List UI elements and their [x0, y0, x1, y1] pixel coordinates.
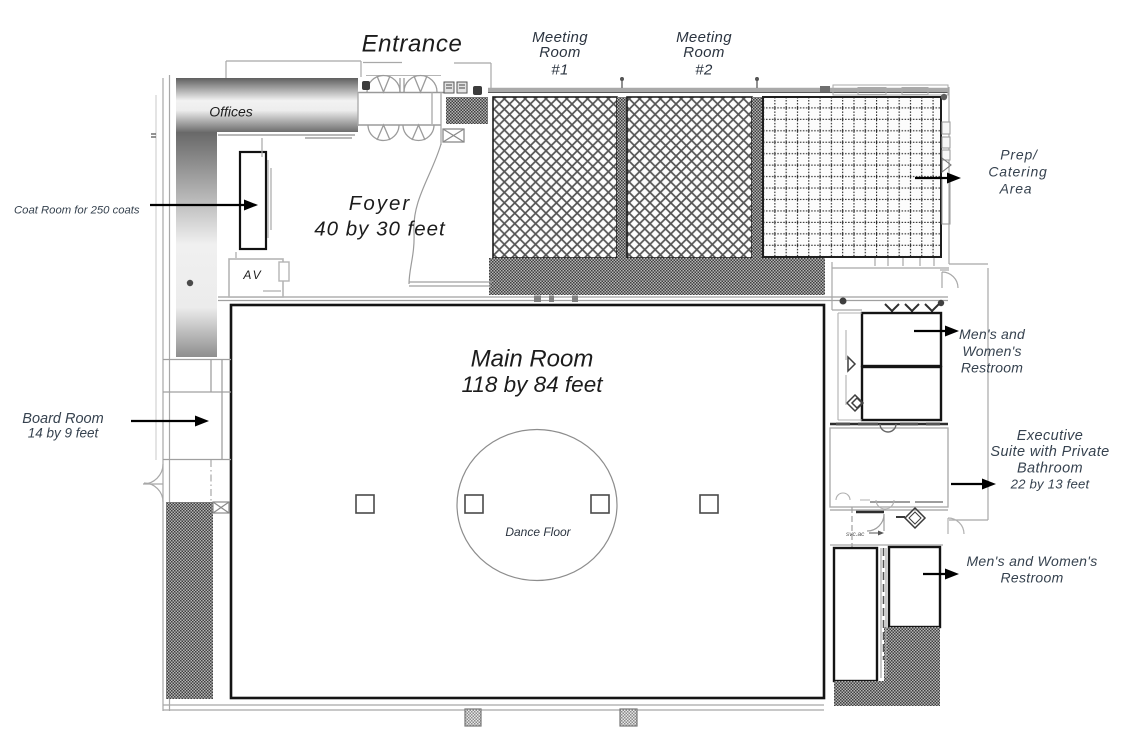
svg-text:Room: Room	[683, 44, 724, 61]
svg-text:Suite with Private: Suite with Private	[990, 444, 1109, 460]
svg-text:Area: Area	[999, 181, 1033, 197]
svg-text:Main Room: Main Room	[471, 346, 594, 373]
svg-text:Men's and: Men's and	[959, 326, 1026, 342]
svg-text:Catering: Catering	[988, 164, 1047, 180]
svg-text:svc.ac: svc.ac	[846, 531, 865, 538]
svg-text:Men's and Women's: Men's and Women's	[966, 553, 1097, 569]
svg-text:Bathroom: Bathroom	[1017, 461, 1083, 477]
svg-text:40 by 30 feet: 40 by 30 feet	[314, 218, 446, 241]
svg-text:14 by 9 feet: 14 by 9 feet	[28, 426, 100, 441]
svg-text:Women's: Women's	[962, 343, 1021, 359]
svg-text:AV: AV	[242, 268, 262, 282]
svg-text:Foyer: Foyer	[349, 192, 411, 215]
svg-text:Offices: Offices	[209, 104, 253, 120]
svg-text:118 by 84 feet: 118 by 84 feet	[462, 372, 605, 397]
svg-text:Coat Room for 250 coats: Coat Room for 250 coats	[14, 205, 140, 217]
svg-text:Restroom: Restroom	[961, 360, 1023, 376]
svg-text:#2: #2	[695, 62, 713, 79]
svg-text:#1: #1	[551, 62, 568, 79]
svg-text:Dance Floor: Dance Floor	[505, 525, 571, 539]
svg-text:Room: Room	[539, 44, 580, 61]
svg-text:Entrance: Entrance	[362, 31, 463, 58]
svg-text:Prep/: Prep/	[1000, 147, 1039, 163]
svg-text:22 by 13 feet: 22 by 13 feet	[1010, 477, 1091, 492]
svg-text:Executive: Executive	[1017, 428, 1083, 444]
svg-text:Restroom: Restroom	[1000, 570, 1063, 586]
